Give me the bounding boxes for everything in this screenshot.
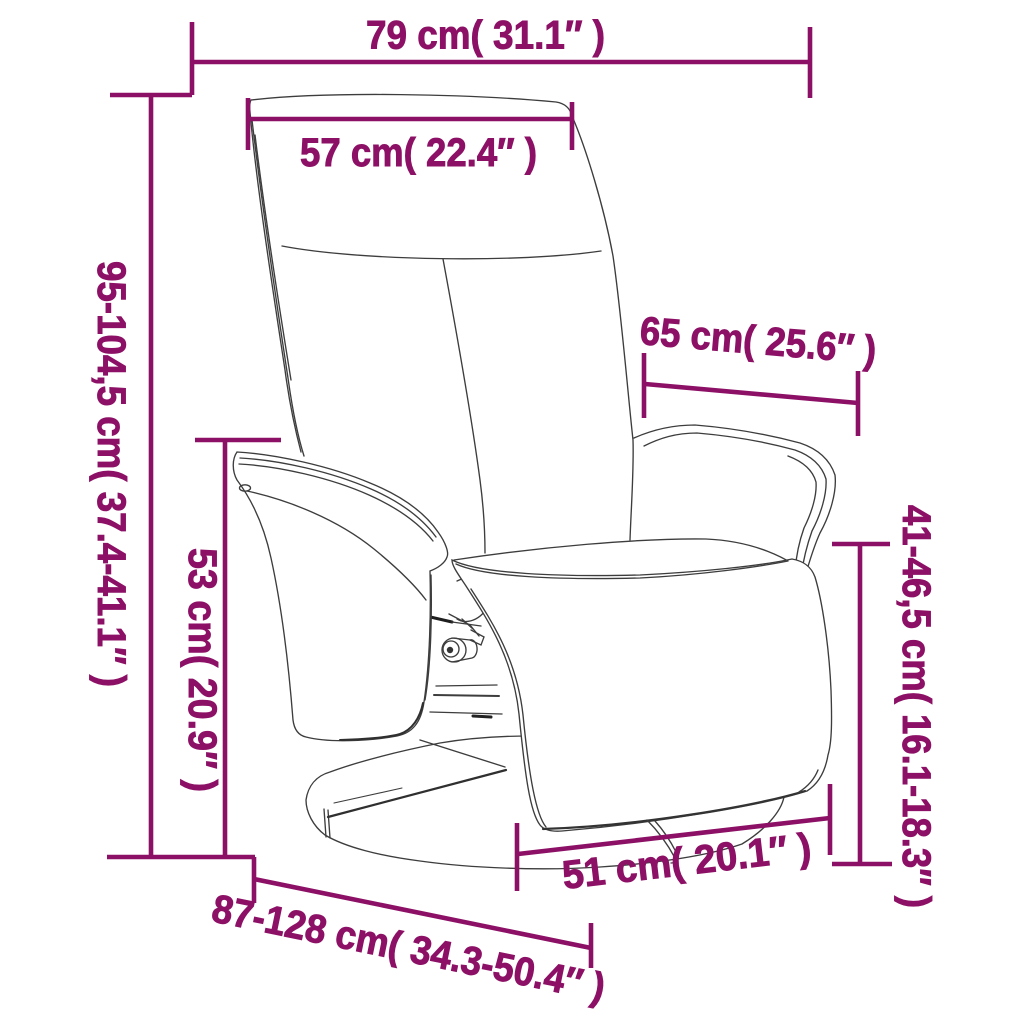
svg-text:57 cm( 22.4″ ): 57 cm( 22.4″ ) <box>300 131 537 175</box>
svg-text:95-104,5 cm( 37.4-41.1″ ): 95-104,5 cm( 37.4-41.1″ ) <box>89 261 133 687</box>
svg-text:79 cm( 31.1″ ): 79 cm( 31.1″ ) <box>366 14 605 58</box>
svg-text:41-46,5 cm( 16.1-18.3″ ): 41-46,5 cm( 16.1-18.3″ ) <box>894 505 938 908</box>
svg-text:53 cm( 20.9″ ): 53 cm( 20.9″ ) <box>180 548 224 792</box>
